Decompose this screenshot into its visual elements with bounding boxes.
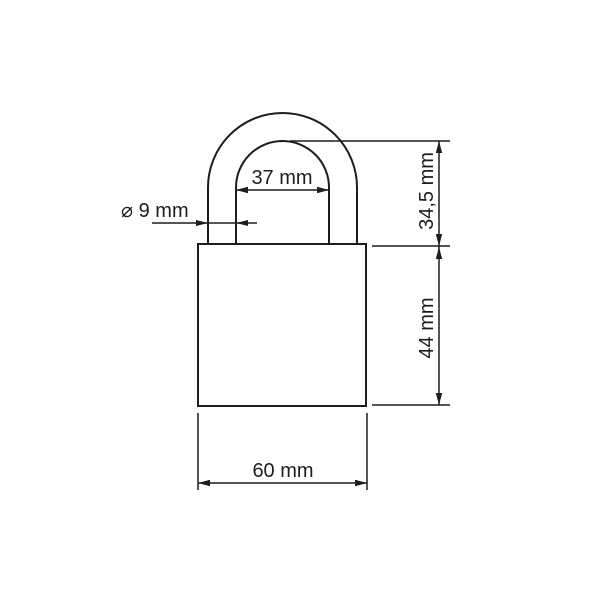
arrowhead-right-icon (355, 480, 367, 486)
shackle-inner-arc (236, 141, 329, 244)
label-shackle-inner-width: 37 mm (251, 167, 312, 189)
arrowhead-right-icon (196, 220, 208, 226)
arrowhead-up-icon (436, 247, 442, 259)
arrowhead-left-icon (236, 187, 248, 193)
padlock-diagram-svg: 37 mm ⌀ 9 mm 34,5 mm 44 mm (0, 0, 600, 600)
arrowhead-left-icon (236, 220, 248, 226)
label-shackle-height: 34,5 mm (416, 152, 438, 230)
dimension-shackle-inner-width: 37 mm (236, 167, 329, 193)
label-body-width: 60 mm (252, 460, 313, 482)
padlock-outline (198, 113, 366, 406)
padlock-body (198, 244, 366, 406)
technical-drawing: 37 mm ⌀ 9 mm 34,5 mm 44 mm (0, 0, 600, 600)
arrowhead-up-icon (436, 141, 442, 153)
label-body-height: 44 mm (416, 297, 438, 358)
arrowhead-right-icon (317, 187, 329, 193)
arrowhead-down-icon (436, 234, 442, 246)
dimension-body-width: 60 mm (198, 413, 367, 490)
arrowhead-left-icon (198, 480, 210, 486)
arrowhead-down-icon (436, 393, 442, 405)
label-shackle-diameter: ⌀ 9 mm (121, 200, 189, 222)
dimension-shackle-height: 34,5 mm (290, 141, 450, 246)
dimension-body-height: 44 mm (372, 246, 450, 405)
